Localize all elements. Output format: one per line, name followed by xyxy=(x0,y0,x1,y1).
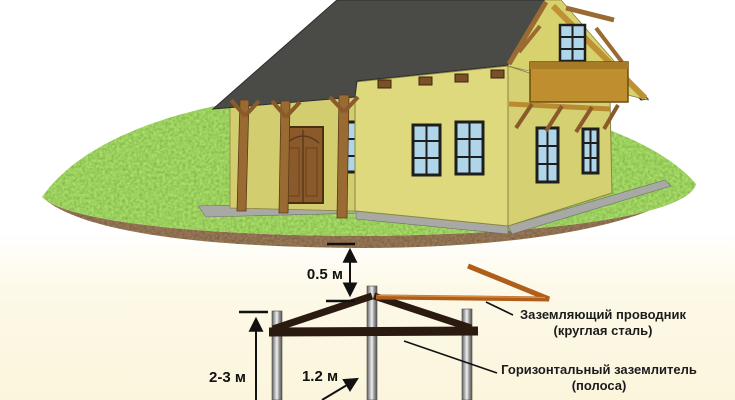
side-window-2 xyxy=(583,129,598,173)
grounding-conductor-label-line1: Заземляющий проводник xyxy=(520,307,686,322)
front-window-2 xyxy=(456,122,483,174)
grounding-conductor-label-line2: (круглая сталь) xyxy=(553,323,652,338)
diagram: 0.5 м 2-3 м 1.2 м Заземляющий проводник … xyxy=(0,0,735,400)
dimension-surface-depth: 0.5 м xyxy=(293,266,343,283)
horizontal-electrode-label-line1: Горизонтальный заземлитель xyxy=(501,362,697,377)
grounding-conductor-label: Заземляющий проводник (круглая сталь) xyxy=(505,307,701,339)
porch-post-3 xyxy=(337,95,349,218)
diagram-canvas xyxy=(0,0,735,400)
horizontal-electrode-label-line2: (полоса) xyxy=(572,378,627,393)
side-window-1 xyxy=(537,128,558,182)
dimension-rod-length: 2-3 м xyxy=(198,369,246,386)
front-window-1 xyxy=(413,125,440,175)
dimension-rod-spacing: 1.2 м xyxy=(298,368,342,385)
horizontal-electrode-label: Горизонтальный заземлитель (полоса) xyxy=(498,362,700,394)
ground-rod-center xyxy=(367,286,377,400)
attic-window xyxy=(560,25,585,61)
